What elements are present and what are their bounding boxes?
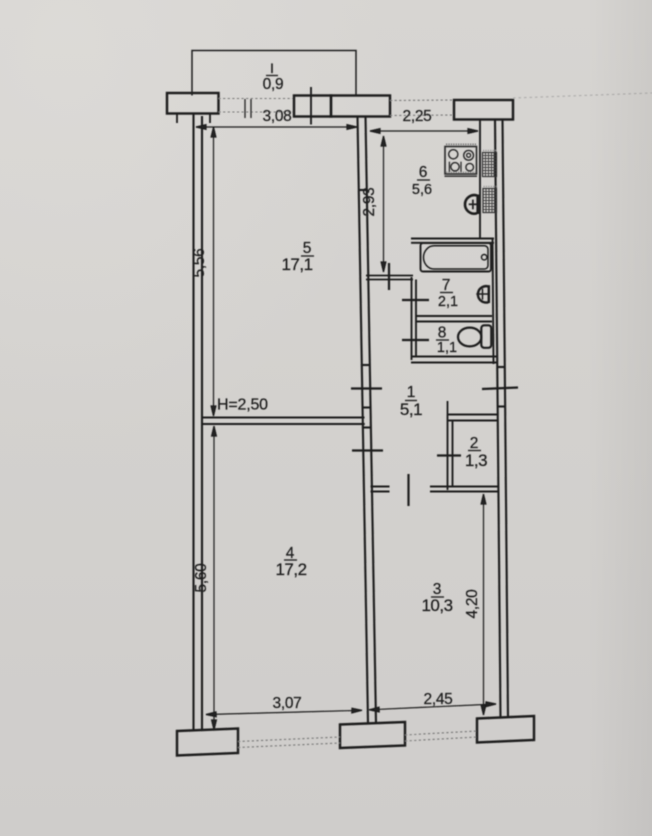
svg-text:6: 6 (419, 164, 428, 181)
svg-text:I: I (270, 60, 274, 76)
svg-text:1: 1 (407, 384, 416, 401)
svg-text:5,60: 5,60 (193, 563, 210, 593)
svg-text:1,3: 1,3 (465, 451, 487, 470)
svg-text:5,6: 5,6 (412, 182, 432, 198)
svg-text:4,20: 4,20 (464, 589, 481, 619)
svg-text:2,25: 2,25 (403, 108, 432, 125)
svg-text:5,56: 5,56 (191, 249, 208, 278)
svg-text:1,1: 1,1 (437, 340, 457, 356)
svg-text:0,9: 0,9 (263, 76, 284, 93)
svg-text:2,1: 2,1 (438, 294, 458, 310)
svg-text:7: 7 (442, 277, 451, 294)
svg-text:3,07: 3,07 (273, 695, 302, 712)
svg-text:2: 2 (470, 435, 479, 452)
svg-text:17,2: 17,2 (275, 560, 306, 579)
svg-text:8: 8 (438, 325, 447, 342)
svg-text:5,1: 5,1 (400, 400, 422, 419)
svg-text:17,1: 17,1 (281, 255, 312, 274)
svg-text:H=2,50: H=2,50 (217, 397, 268, 414)
svg-text:10,3: 10,3 (421, 596, 452, 615)
svg-text:2,45: 2,45 (424, 691, 453, 708)
svg-text:2,93: 2,93 (361, 188, 378, 217)
svg-text:3,08: 3,08 (263, 108, 292, 125)
